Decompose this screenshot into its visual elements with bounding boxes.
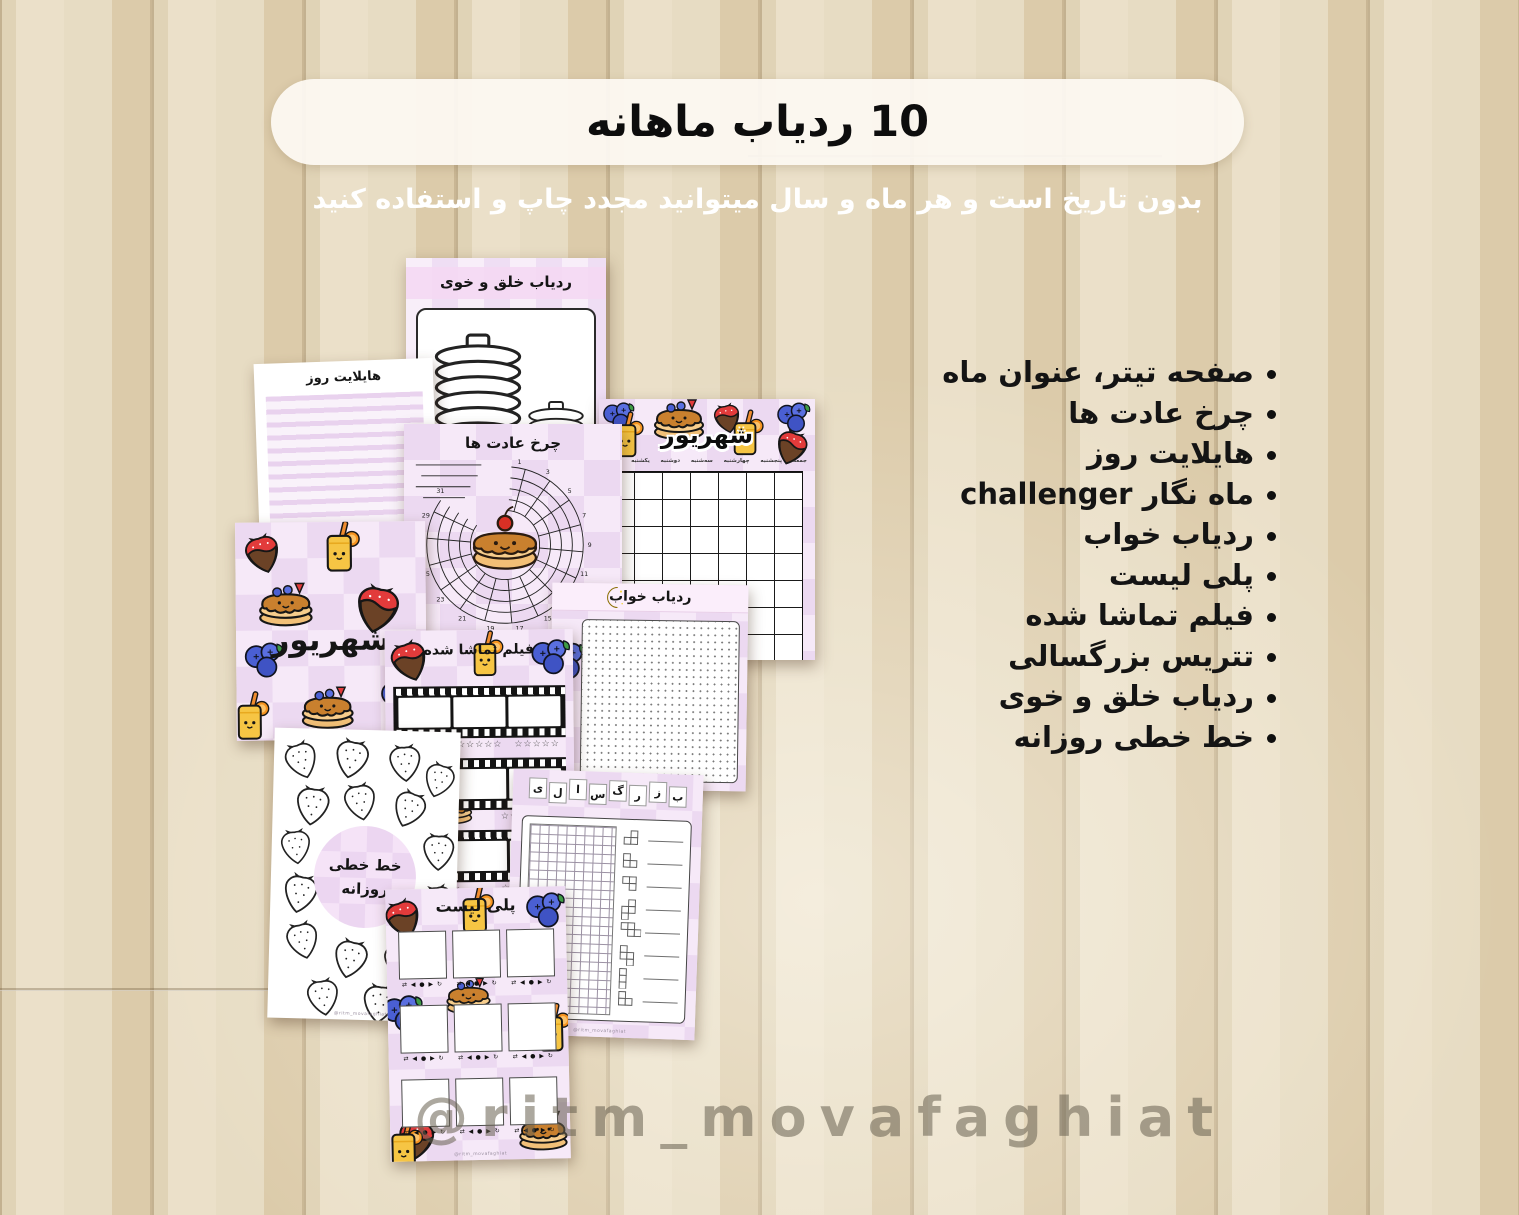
album-placeholder bbox=[398, 931, 447, 980]
strawberry-outline-icon bbox=[337, 775, 382, 825]
watermark-handle: @ritm_movafaghiat bbox=[414, 1086, 1226, 1149]
tetromino-icon bbox=[621, 875, 643, 897]
letter-box: ا bbox=[569, 779, 588, 801]
page-sleep-tracker: ردیاب خواب bbox=[550, 583, 749, 792]
pancake-cherry-icon bbox=[474, 507, 536, 569]
page-title: 10 ردیاب ماهانه bbox=[586, 97, 929, 147]
feature-item: هایلایت روز bbox=[942, 433, 1276, 474]
bullet-dot-icon bbox=[1267, 572, 1276, 581]
letter-box: ی bbox=[529, 777, 548, 799]
features-list: صفحه تیتر، عنوان ماه چرخ عادت ها هایلایت… bbox=[942, 352, 1276, 757]
month-chart-title: شهریور bbox=[599, 421, 815, 449]
sleep-tracker-title: ردیاب خواب bbox=[552, 588, 748, 607]
album-placeholder bbox=[452, 930, 501, 979]
weekday-label: سه‌شنبه bbox=[691, 458, 713, 464]
tetris-title-letters: ب ز ر گ س ا ل ی bbox=[513, 777, 704, 805]
letter-box: گ bbox=[609, 780, 628, 802]
tetromino-icon bbox=[619, 921, 641, 943]
weekday-label: چهارشنبه bbox=[724, 458, 750, 464]
bullet-dot-icon bbox=[1267, 613, 1276, 622]
pancakes-icon bbox=[256, 580, 316, 628]
strawberry-outline-icon bbox=[276, 822, 316, 867]
feature-label: پلی لیست bbox=[1109, 558, 1254, 592]
film-frame bbox=[398, 697, 450, 728]
bullet-dot-icon bbox=[1267, 370, 1276, 379]
feature-label: فیلم تماشا شده bbox=[1025, 598, 1254, 632]
tetromino-icon bbox=[619, 944, 641, 966]
feature-label: هایلایت روز bbox=[1087, 436, 1254, 470]
feature-item: تتریس بزرگسالی bbox=[942, 636, 1276, 677]
feature-label: چرخ عادت ها bbox=[1068, 396, 1254, 430]
svg-text:15: 15 bbox=[544, 615, 552, 623]
weekday-label: دوشنبه bbox=[661, 458, 680, 464]
feature-item: صفحه تیتر، عنوان ماه bbox=[942, 352, 1276, 393]
tetromino-icon bbox=[623, 829, 645, 851]
feature-item: ماه نگار challenger bbox=[942, 474, 1276, 515]
bullet-dot-icon bbox=[1267, 532, 1276, 541]
film-frame bbox=[508, 696, 560, 727]
sleep-dot-grid bbox=[580, 619, 740, 783]
film-frame bbox=[453, 697, 505, 728]
mood-tracker-title: ردیاب خلق و خوی bbox=[406, 273, 606, 291]
tetromino-icon bbox=[622, 852, 644, 874]
player-controls-icons: ⇄ ◀ ● ▶ ↻ bbox=[456, 980, 497, 988]
star-rating: ☆☆☆☆☆ bbox=[457, 740, 502, 750]
weekday-label: یکشنبه bbox=[631, 458, 650, 464]
bullet-dot-icon bbox=[1267, 734, 1276, 743]
bullet-dot-icon bbox=[1267, 694, 1276, 703]
svg-text:31: 31 bbox=[436, 487, 444, 495]
write-line bbox=[644, 955, 679, 957]
write-line bbox=[646, 886, 681, 888]
tetromino-list bbox=[617, 827, 684, 1016]
strawberry-outline-icon bbox=[279, 913, 326, 965]
playlist-title: پلی لیست bbox=[385, 894, 565, 917]
album-placeholder bbox=[506, 928, 555, 977]
feature-label: صفحه تیتر، عنوان ماه bbox=[942, 355, 1254, 389]
svg-text:29: 29 bbox=[422, 512, 430, 520]
write-line bbox=[647, 863, 682, 865]
write-line bbox=[646, 909, 681, 911]
feature-label: خط خطی روزانه bbox=[1014, 720, 1254, 754]
album-placeholder bbox=[454, 1004, 503, 1053]
write-line bbox=[645, 932, 680, 934]
weekday-label: پنجشنبه bbox=[760, 458, 782, 464]
promo-image: 10 ردیاب ماهانه بدون تاریخ است و هر ماه … bbox=[0, 0, 1519, 1215]
letter-box: س bbox=[588, 783, 607, 805]
letter-box: ب bbox=[668, 786, 687, 808]
player-controls-icons: ⇄ ◀ ● ▶ ↻ bbox=[458, 1054, 499, 1062]
feature-item: ردیاب خلق و خوی bbox=[942, 676, 1276, 717]
svg-text:23: 23 bbox=[436, 595, 444, 603]
album-row bbox=[400, 1002, 557, 1053]
bullet-dot-icon bbox=[1267, 410, 1276, 419]
svg-text:11: 11 bbox=[580, 570, 588, 578]
feature-item: خط خطی روزانه bbox=[942, 717, 1276, 758]
day-highlight-title: هایلایت روز bbox=[254, 367, 433, 388]
svg-text:3: 3 bbox=[546, 468, 550, 476]
write-line bbox=[648, 840, 683, 842]
film-frame bbox=[455, 841, 507, 872]
title-banner: 10 ردیاب ماهانه bbox=[271, 79, 1244, 165]
strawberry-outline-icon bbox=[290, 778, 336, 829]
bullet-dot-icon bbox=[1267, 653, 1276, 662]
feature-label: تتریس بزرگسالی bbox=[1008, 639, 1254, 673]
write-line bbox=[643, 978, 678, 980]
player-controls-icons: ⇄ ◀ ● ▶ ↻ bbox=[403, 1055, 444, 1063]
letter-box: ل bbox=[549, 782, 568, 804]
star-rating: ☆☆☆☆☆ bbox=[514, 739, 559, 749]
player-controls-icons: ⇄ ◀ ● ▶ ↻ bbox=[511, 978, 552, 986]
doodle-title-line1: خط خطی bbox=[314, 855, 416, 876]
svg-text:21: 21 bbox=[458, 615, 466, 623]
weekday-label: جمعه bbox=[793, 458, 807, 464]
album-placeholder bbox=[400, 1005, 449, 1054]
player-controls-row: ⇄ ◀ ● ▶ ↻ ⇄ ◀ ● ▶ ↻ ⇄ ◀ ● ▶ ↻ bbox=[397, 1052, 561, 1062]
album-placeholder bbox=[508, 1002, 557, 1051]
strawberry-outline-icon bbox=[276, 731, 326, 785]
tetromino-icon bbox=[617, 990, 639, 1012]
bullet-dot-icon bbox=[1267, 451, 1276, 460]
write-line bbox=[642, 1001, 677, 1003]
weekday-labels: شنبه یکشنبه دوشنبه سه‌شنبه چهارشنبه پنجش… bbox=[607, 458, 807, 464]
svg-text:9: 9 bbox=[588, 541, 592, 549]
svg-text:7: 7 bbox=[582, 512, 586, 520]
tetromino-icon bbox=[620, 898, 642, 920]
letter-box: ز bbox=[649, 782, 668, 804]
pancakes-icon bbox=[298, 684, 356, 731]
watched-movies-title: فیلم تماشا شده bbox=[385, 641, 573, 659]
tetromino-icon bbox=[618, 967, 640, 989]
habit-wheel-title: چرخ عادت ها bbox=[404, 434, 622, 452]
strawberry-icon bbox=[236, 524, 289, 580]
player-controls-icons: ⇄ ◀ ● ▶ ↻ bbox=[513, 1052, 554, 1060]
feature-item: فیلم تماشا شده bbox=[942, 595, 1276, 636]
feature-item: چرخ عادت ها bbox=[942, 393, 1276, 434]
svg-text:1: 1 bbox=[518, 458, 522, 466]
bullet-dot-icon bbox=[1267, 491, 1276, 500]
feature-label: ردیاب خلق و خوی bbox=[999, 679, 1254, 713]
letter-box: ر bbox=[628, 785, 647, 807]
feature-item: پلی لیست bbox=[942, 555, 1276, 596]
album-row bbox=[398, 928, 555, 979]
feature-label: ردیاب خواب bbox=[1083, 517, 1254, 551]
juice-glass-icon bbox=[235, 691, 271, 741]
feature-item: ردیاب خواب bbox=[942, 514, 1276, 555]
wood-seam bbox=[0, 988, 312, 991]
juice-glass-icon bbox=[319, 521, 361, 575]
strawberry-outline-icon bbox=[419, 827, 458, 872]
svg-text:5: 5 bbox=[568, 487, 572, 495]
feature-label: ماه نگار challenger bbox=[960, 477, 1254, 511]
strawberry-outline-icon bbox=[385, 738, 426, 784]
player-controls-icons: ⇄ ◀ ● ▶ ↻ bbox=[402, 981, 443, 989]
film-frame bbox=[454, 769, 506, 800]
subtitle: بدون تاریخ است و هر ماه و سال میتوانید م… bbox=[271, 184, 1244, 215]
